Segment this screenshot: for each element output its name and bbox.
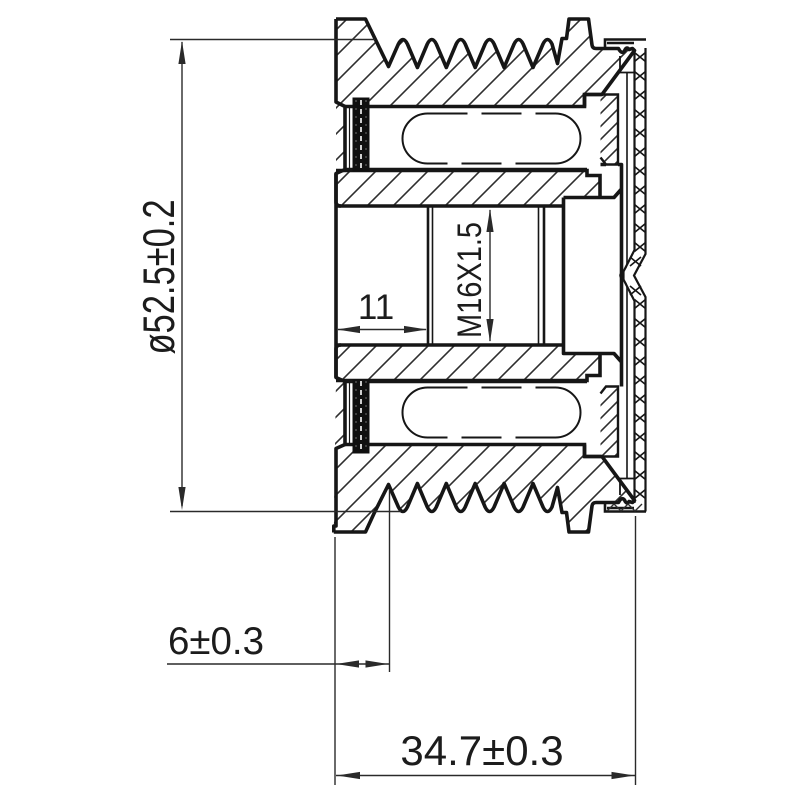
svg-text:34.7±0.3: 34.7±0.3	[400, 727, 563, 774]
svg-text:6±0.3: 6±0.3	[168, 620, 264, 663]
svg-text:ø52.5±0.2: ø52.5±0.2	[135, 199, 184, 354]
svg-text:M16X1.5: M16X1.5	[450, 222, 489, 338]
svg-text:11: 11	[358, 288, 394, 327]
